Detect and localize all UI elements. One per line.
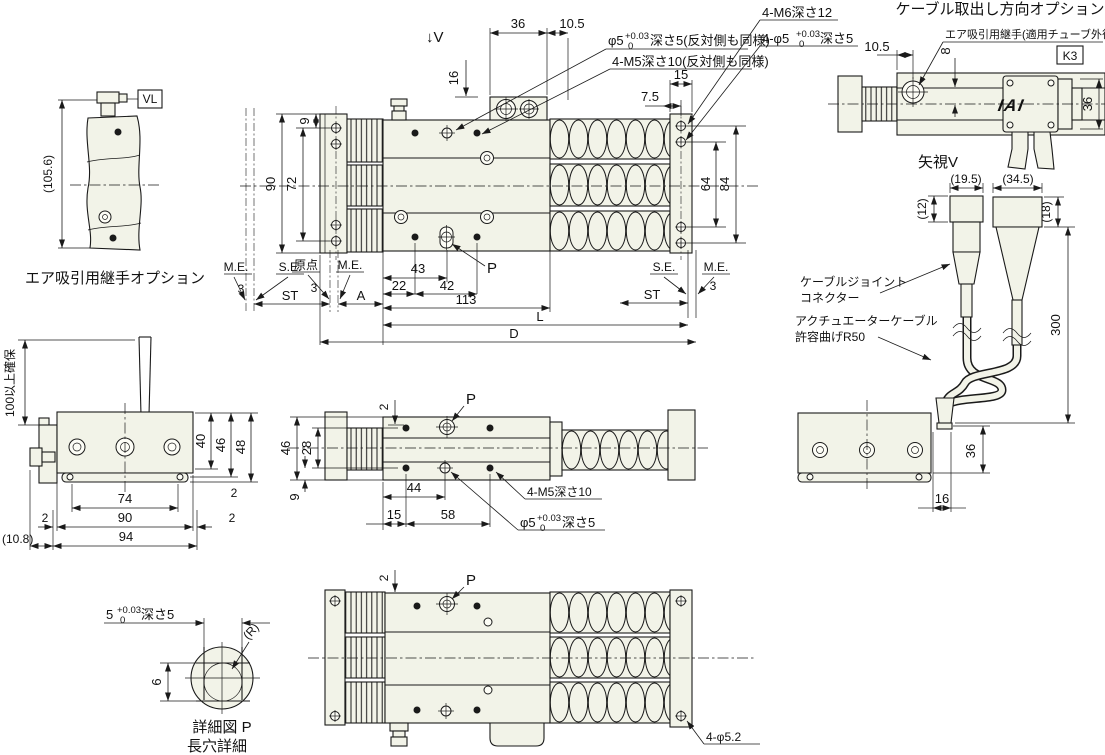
dim-8: 8 xyxy=(938,47,953,54)
elbow-fitting-left xyxy=(30,448,42,466)
dim-l: L xyxy=(536,309,543,324)
bellows-right xyxy=(550,637,670,678)
cap-center xyxy=(550,422,562,476)
dim-st-right: ST xyxy=(644,287,661,302)
label-me-2: M.E. xyxy=(338,258,363,272)
view-main-top: ↓V 36 10.5 16 φ5+0.030深さ5(反対側も同様) 4-M5深さ… xyxy=(224,5,858,345)
label-p-main: P xyxy=(487,260,497,277)
svg-text:コネクター: コネクター xyxy=(800,291,860,305)
dim-7-5: 7.5 xyxy=(641,89,659,104)
dim-18: (18) xyxy=(1039,201,1053,222)
dim-94: 94 xyxy=(119,529,133,544)
svg-text:許容曲げR50: 許容曲げR50 xyxy=(795,329,865,344)
dim-34-5: (34.5) xyxy=(1002,172,1033,186)
view-side-center: 46 28 9 2 P 44 15 58 4-M5深さ10 φ5+0.030深さ… xyxy=(278,391,708,534)
label-cable-joint: ケーブルジョイント コネクター xyxy=(800,264,950,305)
label-4phi5-2: 4-φ5.2 xyxy=(687,721,760,744)
detail-caption-2: 長穴詳細 xyxy=(187,738,247,755)
dim-42: 42 xyxy=(440,278,454,293)
actuator-dimension-drawing: (105.6) VL エア吸引用継手オプション xyxy=(0,0,1105,755)
view-detail-p: (R) 6 5+0.030深さ5 詳細図 P 長穴詳細 xyxy=(104,605,270,755)
dim-36-base: 36 xyxy=(963,444,978,458)
dim-12: (12) xyxy=(915,198,929,219)
dim-28: 28 xyxy=(299,441,314,455)
bellows-band xyxy=(347,165,383,206)
vl-tag: VL xyxy=(143,92,158,106)
svg-text:エア吸引用継手(適用チューブ外径φ6): エア吸引用継手(適用チューブ外径φ6) xyxy=(945,27,1105,41)
svg-text:4-φ5.2: 4-φ5.2 xyxy=(706,730,741,744)
svg-text:アクチュエーターケーブル: アクチュエーターケーブル xyxy=(795,313,938,328)
bellows-band xyxy=(347,119,383,162)
dim-113: 113 xyxy=(456,292,477,307)
right-plate-bottom xyxy=(670,590,692,727)
dim-40: 40 xyxy=(193,434,208,448)
label-r: (R) xyxy=(240,620,262,642)
view-side-left: 100以上確保 40 46 48 2 74 90 2 2 94 (10.8) xyxy=(2,337,258,550)
dim-2-center: 2 xyxy=(377,403,391,410)
label-p-bottom: P xyxy=(466,572,476,589)
bellows-band xyxy=(345,637,385,678)
dim-64: 64 xyxy=(698,177,713,191)
end-block-center xyxy=(668,410,695,480)
dim-9-left: 9 xyxy=(297,117,312,124)
label-se-2: S.E. xyxy=(653,260,676,274)
motor-housing xyxy=(490,723,544,746)
label-origin: 原点 xyxy=(294,258,318,272)
label-me-3: M.E. xyxy=(704,260,729,274)
svg-text:4-M5深さ10(反対側も同様): 4-M5深さ10(反対側も同様) xyxy=(612,54,769,69)
bellows-band xyxy=(347,209,383,252)
left-end-plate xyxy=(320,114,347,253)
dim-16-base: 16 xyxy=(935,491,949,506)
svg-text:ケーブルジョイント: ケーブルジョイント xyxy=(800,274,907,289)
dim-84: 84 xyxy=(717,177,732,191)
view-direction-arrow: ↓V xyxy=(426,29,444,46)
dim-72: 72 xyxy=(284,177,299,191)
dim-2-c: 2 xyxy=(229,511,236,525)
dim-36-top: 36 xyxy=(511,16,525,31)
view-cables: (19.5) (34.5) (12) (18) 300 ケーブルジョイント コネ… xyxy=(795,172,1075,423)
grease-nipple xyxy=(391,99,407,106)
dim-clearance-100: 100以上確保 xyxy=(2,349,17,417)
label-actuator-cable: アクチュエーターケーブル 許容曲げR50 xyxy=(795,313,938,360)
dim-st-left: ST xyxy=(282,288,299,303)
dim-16: 16 xyxy=(446,71,461,85)
left-plate-bottom xyxy=(325,590,345,725)
flange-center xyxy=(325,412,347,480)
bellows-band xyxy=(345,592,385,633)
dim-9-center: 9 xyxy=(287,493,302,500)
k3-title: ケーブル取出し方向オプション xyxy=(895,0,1104,18)
label-me-1: M.E. xyxy=(224,260,249,274)
slider-block xyxy=(383,120,550,251)
view-bottom-top: 2 P 4-φ5.2 xyxy=(308,570,760,746)
detail-caption-1: 詳細図 P xyxy=(192,719,251,736)
dim-10-5-top: 10.5 xyxy=(559,16,584,31)
dim-43: 43 xyxy=(411,261,425,276)
cable-boot xyxy=(936,398,954,423)
dim-105-6: (105.6) xyxy=(41,155,55,193)
dim-3-right: 3 xyxy=(710,279,717,293)
dim-90: 90 xyxy=(263,177,278,191)
k3-tag: K3 xyxy=(1063,49,1078,63)
svg-text:4-φ5+0.030深さ5: 4-φ5+0.030深さ5 xyxy=(762,29,853,50)
view-k3-option: ケーブル取出し方向オプション IAI K3 10.5 8 36 エア吸引用継手(… xyxy=(828,0,1105,171)
dim-44: 44 xyxy=(407,480,421,495)
dim-46-center: 46 xyxy=(278,441,293,455)
air-fitting-caption: エア吸引用継手オプション xyxy=(25,270,205,287)
dim-19-5: (19.5) xyxy=(950,172,981,186)
dim-3-left: 3 xyxy=(238,282,245,296)
bellows-center xyxy=(562,430,668,470)
bellows-right xyxy=(550,119,670,159)
dim-15-center: 15 xyxy=(387,507,401,522)
elbow-fitting xyxy=(97,92,119,103)
bellows-right xyxy=(550,592,670,633)
svg-text:4-M6深さ12: 4-M6深さ12 xyxy=(762,5,832,20)
cable-stub xyxy=(1008,132,1028,169)
dim-10-8: (10.8) xyxy=(2,532,33,546)
bellows-band xyxy=(345,682,385,723)
dim-48: 48 xyxy=(233,440,248,454)
iai-logo: IAI xyxy=(997,95,1027,115)
screw-hole xyxy=(115,129,122,136)
dim-22: 22 xyxy=(392,278,406,293)
threaded-center xyxy=(347,428,383,470)
dim-10-5-k3: 10.5 xyxy=(864,39,889,54)
cad-drawing-page: (105.6) VL エア吸引用継手オプション xyxy=(0,0,1105,755)
k3-caption: 矢視V xyxy=(918,154,958,171)
dim-2-b: 2 xyxy=(42,511,49,525)
view-air-fitting-option: (105.6) VL エア吸引用継手オプション xyxy=(25,90,205,287)
label-p-center: P xyxy=(466,391,476,408)
screw-hole xyxy=(110,235,117,242)
dim-d: D xyxy=(509,326,518,341)
view-base-side: 36 16 xyxy=(798,398,990,512)
label-phi5-center: φ5+0.030深さ5 xyxy=(451,472,605,534)
connector-small xyxy=(950,196,983,222)
screw-head xyxy=(99,211,111,223)
dim-36-k3: 36 xyxy=(1080,97,1095,111)
base-lip xyxy=(798,473,931,482)
dim-3-mid: 3 xyxy=(311,281,318,295)
bellows-right xyxy=(550,682,670,723)
svg-text:φ5+0.030深さ5: φ5+0.030深さ5 xyxy=(520,513,595,534)
dim-a: A xyxy=(357,288,366,303)
dim-58: 58 xyxy=(441,507,455,522)
dim-74: 74 xyxy=(118,491,132,506)
bellows-right xyxy=(550,211,670,251)
dim-90-left: 90 xyxy=(118,510,132,525)
connector-large xyxy=(993,197,1042,227)
dim-2-bottom: 2 xyxy=(377,574,391,581)
nipple-bottom xyxy=(390,723,408,731)
cable-stub xyxy=(1034,132,1054,169)
dim-2-a: 2 xyxy=(231,486,238,500)
dim-15-plate: 15 xyxy=(674,67,688,82)
dim-46-left: 46 xyxy=(213,438,228,452)
dim-300: 300 xyxy=(1048,314,1063,336)
svg-text:4-M5深さ10: 4-M5深さ10 xyxy=(527,485,592,499)
dim-6: 6 xyxy=(149,678,164,685)
bellows-right xyxy=(550,164,670,206)
